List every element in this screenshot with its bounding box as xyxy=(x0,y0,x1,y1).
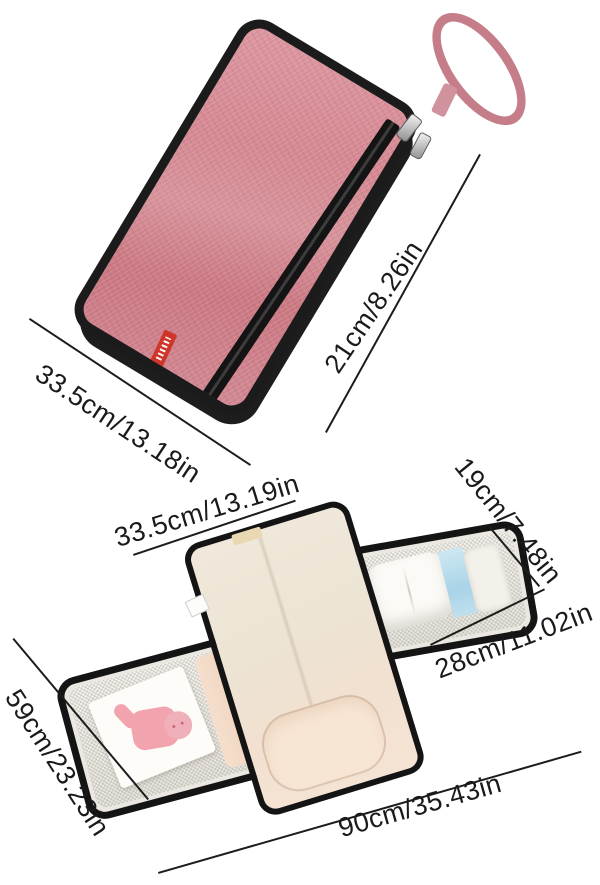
brand-tag-text xyxy=(156,336,172,360)
folded-changing-pad xyxy=(65,10,426,424)
care-label xyxy=(185,594,210,618)
strap-anchor xyxy=(431,82,459,117)
head-pillow xyxy=(254,687,394,799)
cartoon-bunny-eye xyxy=(172,725,176,729)
wrist-strap xyxy=(414,0,544,141)
product-photo: 33.5cm/13.18in 21cm/8.26in xyxy=(0,0,600,885)
brand-tag xyxy=(149,329,177,368)
cartoon-bunny-eye xyxy=(180,721,184,725)
baby-cloth xyxy=(87,665,216,789)
mat-crease xyxy=(257,537,318,720)
diaper-crease xyxy=(403,566,417,615)
